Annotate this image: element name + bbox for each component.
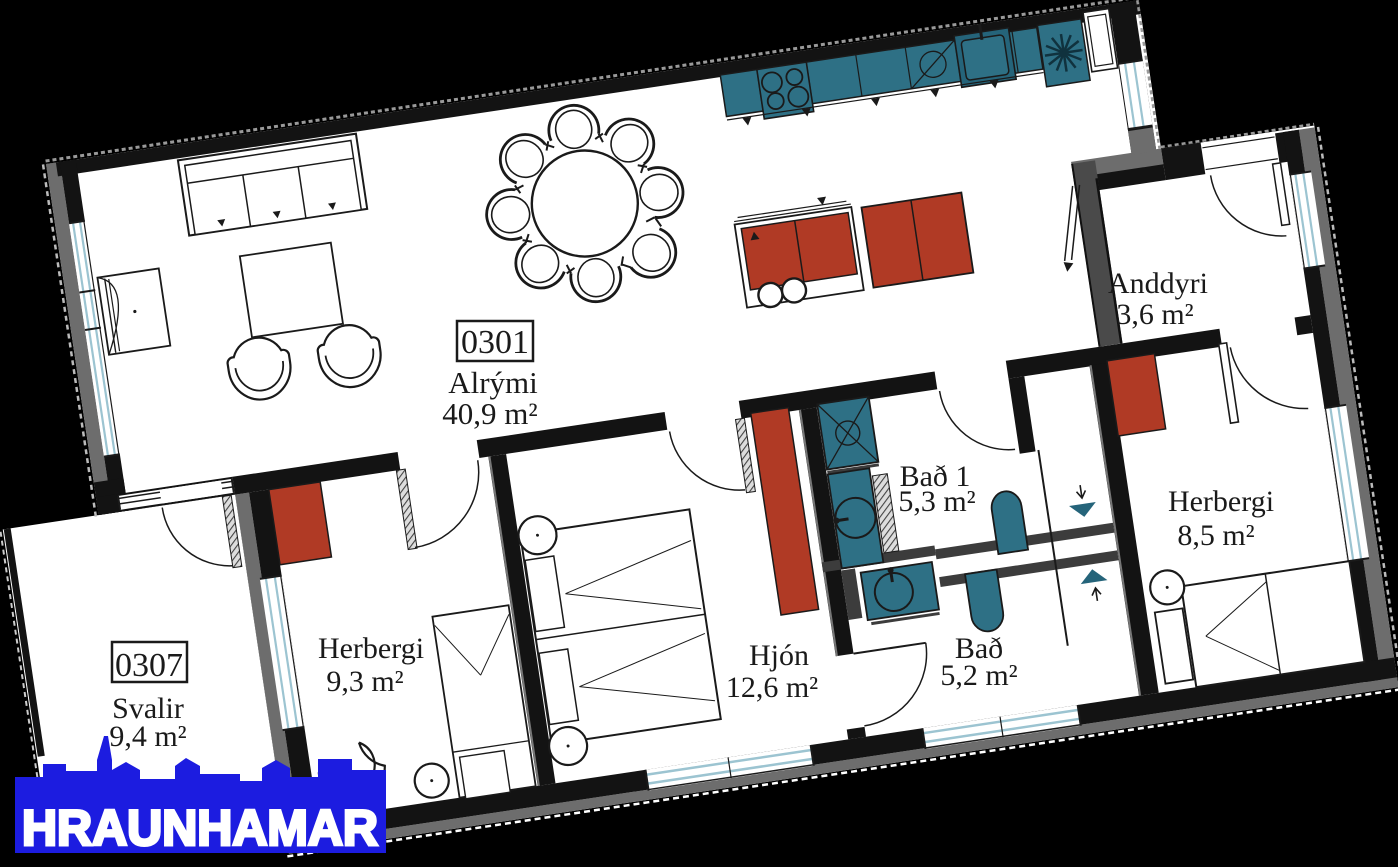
svg-text:Alrými: Alrými <box>448 365 538 400</box>
svg-text:5,3 m²: 5,3 m² <box>898 485 975 518</box>
svg-text:Hjón: Hjón <box>749 639 809 672</box>
svg-text:HRAUNHAMAR: HRAUNHAMAR <box>22 800 378 856</box>
svg-text:3,6 m²: 3,6 m² <box>1116 298 1193 331</box>
svg-text:8,5 m²: 8,5 m² <box>1177 519 1254 552</box>
svg-text:40,9 m²: 40,9 m² <box>442 396 537 431</box>
svg-text:Anddyri: Anddyri <box>1108 267 1208 300</box>
svg-text:Herbergi: Herbergi <box>318 632 424 665</box>
svg-text:0301: 0301 <box>461 324 529 361</box>
svg-text:5,2 m²: 5,2 m² <box>940 659 1017 692</box>
svg-text:9,3 m²: 9,3 m² <box>326 665 403 698</box>
svg-text:12,6 m²: 12,6 m² <box>726 671 818 704</box>
svg-text:Herbergi: Herbergi <box>1168 485 1274 518</box>
svg-text:0307: 0307 <box>115 647 183 684</box>
svg-text:9,4 m²: 9,4 m² <box>109 720 186 753</box>
